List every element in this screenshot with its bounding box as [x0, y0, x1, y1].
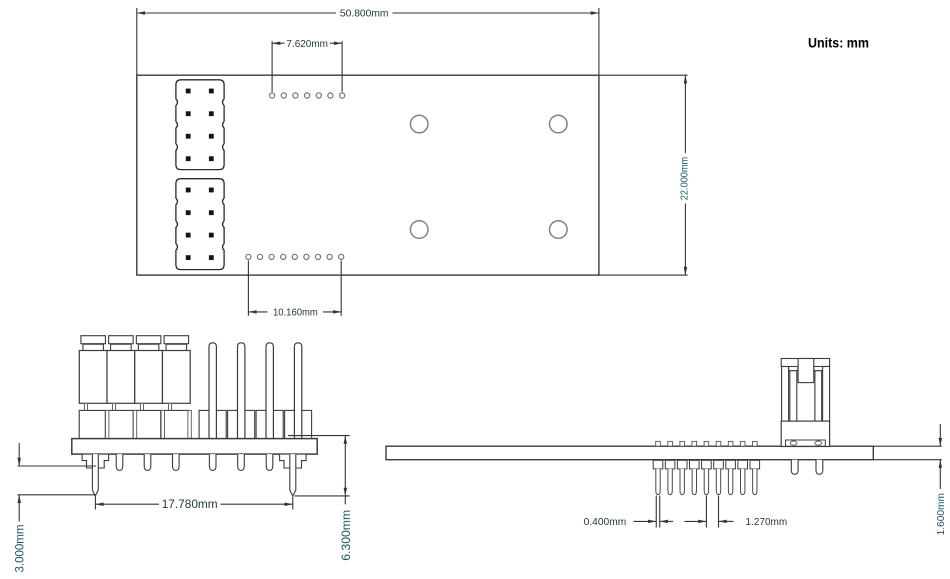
svg-text:1.270mm: 1.270mm: [746, 516, 788, 528]
svg-text:1.600mm: 1.600mm: [935, 493, 947, 536]
svg-text:10.160mm: 10.160mm: [273, 307, 318, 319]
svg-text:3.000mm: 3.000mm: [12, 525, 26, 573]
svg-text:50.800mm: 50.800mm: [340, 8, 389, 20]
svg-text:22.000mm: 22.000mm: [680, 157, 691, 200]
svg-text:Units: mm: Units: mm: [808, 35, 869, 51]
svg-text:0.400mm: 0.400mm: [584, 516, 627, 528]
svg-text:17.780mm: 17.780mm: [162, 497, 218, 511]
svg-text:7.620mm: 7.620mm: [286, 38, 328, 50]
svg-text:6.300mm: 6.300mm: [339, 510, 353, 561]
